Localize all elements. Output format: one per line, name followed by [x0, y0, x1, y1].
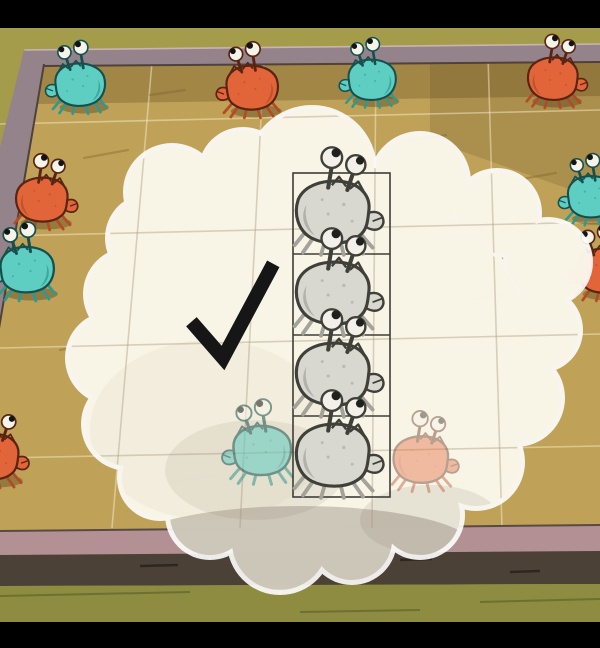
game-stage: [0, 0, 600, 648]
game-scene: [0, 0, 600, 648]
edge-streak: [140, 565, 178, 566]
letterbox-top: [0, 0, 600, 28]
edge-streak: [510, 571, 540, 572]
bubble-scallop: [508, 222, 588, 302]
letterbox-bottom: [0, 622, 600, 648]
